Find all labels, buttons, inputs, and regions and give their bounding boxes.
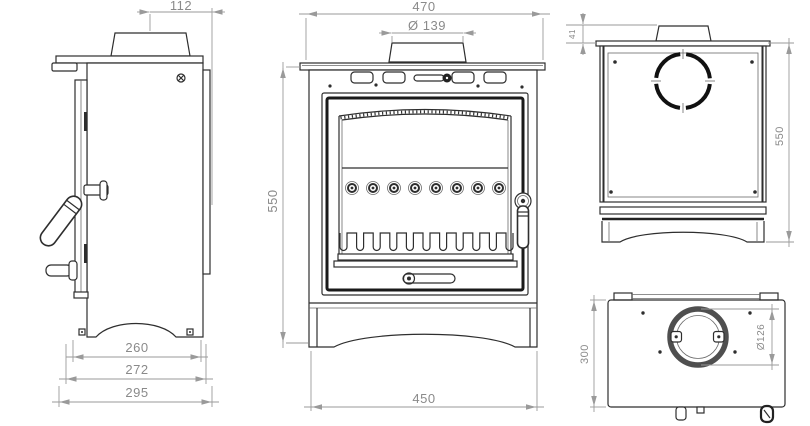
side-air-control-knob [52,63,77,71]
side-rear-shield [203,70,210,274]
side-door-foot [74,292,88,298]
dim-top-depth: 300 [579,295,606,412]
top-catch [697,407,704,413]
side-top-plate [56,56,203,63]
top-plate-edge [614,293,778,300]
front-door-handle [515,193,531,248]
dim-label-272: 272 [125,362,148,377]
dim-label-300: 300 [579,344,591,364]
top-door-handle [761,406,773,422]
dim-back-overall-height: 550 [766,38,794,247]
top-slider-knob [676,407,686,420]
dim-label-112: 112 [170,0,192,13]
dim-label-295: 295 [125,385,148,400]
back-base-band [600,207,766,214]
dim-label-139: Ø 139 [408,18,446,33]
dim-side-base-width: 260 [66,340,208,362]
side-view: 112 260 272 295 [37,0,225,407]
dim-front-overall-height: 550 [265,62,308,348]
front-flue-collar [389,43,466,62]
dim-front-base-width: 450 [304,351,544,411]
top-view: 300 Ø126 [579,293,785,422]
dim-label-41: 41 [568,29,577,39]
back-view: 41 550 [566,13,794,247]
dim-label-550-front: 550 [265,189,280,212]
side-hinge-upper [84,112,88,131]
side-riddling-knob [46,261,77,280]
top-body [608,300,785,407]
dim-label-260: 260 [125,340,148,355]
front-body [309,70,537,347]
dim-label-470: 470 [412,0,435,14]
dim-label-126: Ø126 [756,324,767,350]
front-top-plate [300,63,545,70]
dim-side-overall-depth: 295 [52,385,219,407]
front-view: 470 Ø 139 550 450 [265,0,550,411]
dim-front-flue-diameter: Ø 139 [379,18,476,42]
side-hinge-lower [84,244,88,263]
back-top-plate [596,41,770,46]
back-plinth [602,221,764,242]
dim-label-550-back: 550 [774,126,786,146]
dim-label-450: 450 [412,391,435,406]
stove-technical-drawing: 112 260 272 295 [0,0,810,426]
drawing-canvas: 112 260 272 295 [0,0,810,426]
side-flue-collar [111,33,190,56]
back-flue-collar [656,26,711,41]
back-body [600,46,766,202]
